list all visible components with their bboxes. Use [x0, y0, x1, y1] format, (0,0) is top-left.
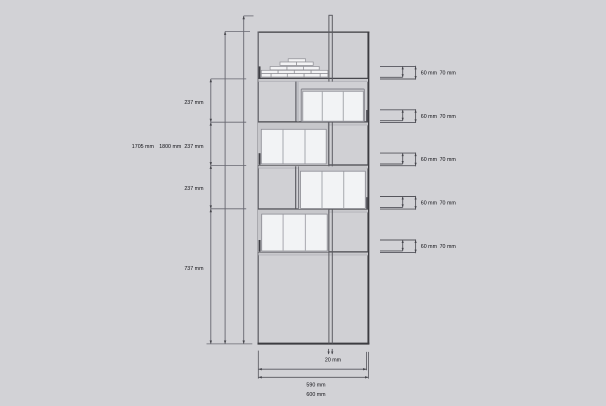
svg-text:590 mm: 590 mm: [306, 383, 326, 389]
svg-text:237 mm: 237 mm: [184, 100, 204, 106]
svg-text:237 mm: 237 mm: [184, 186, 204, 192]
svg-text:60 mm: 60 mm: [421, 157, 438, 163]
svg-text:60 mm: 60 mm: [421, 201, 438, 207]
svg-text:70 mm: 70 mm: [440, 157, 457, 163]
svg-text:70 mm: 70 mm: [440, 71, 457, 77]
svg-text:70 mm: 70 mm: [440, 201, 457, 207]
svg-text:1800 mm: 1800 mm: [159, 144, 182, 150]
svg-text:20 mm: 20 mm: [325, 357, 342, 363]
svg-text:237 mm: 237 mm: [184, 144, 204, 150]
svg-text:70 mm: 70 mm: [440, 114, 457, 120]
svg-text:600 mm: 600 mm: [306, 392, 326, 398]
svg-text:737 mm: 737 mm: [184, 266, 204, 272]
svg-text:70 mm: 70 mm: [440, 244, 457, 250]
svg-text:60 mm: 60 mm: [421, 71, 438, 77]
svg-text:60 mm: 60 mm: [421, 114, 438, 120]
svg-text:1705 mm: 1705 mm: [132, 144, 155, 150]
svg-text:60 mm: 60 mm: [421, 244, 438, 250]
